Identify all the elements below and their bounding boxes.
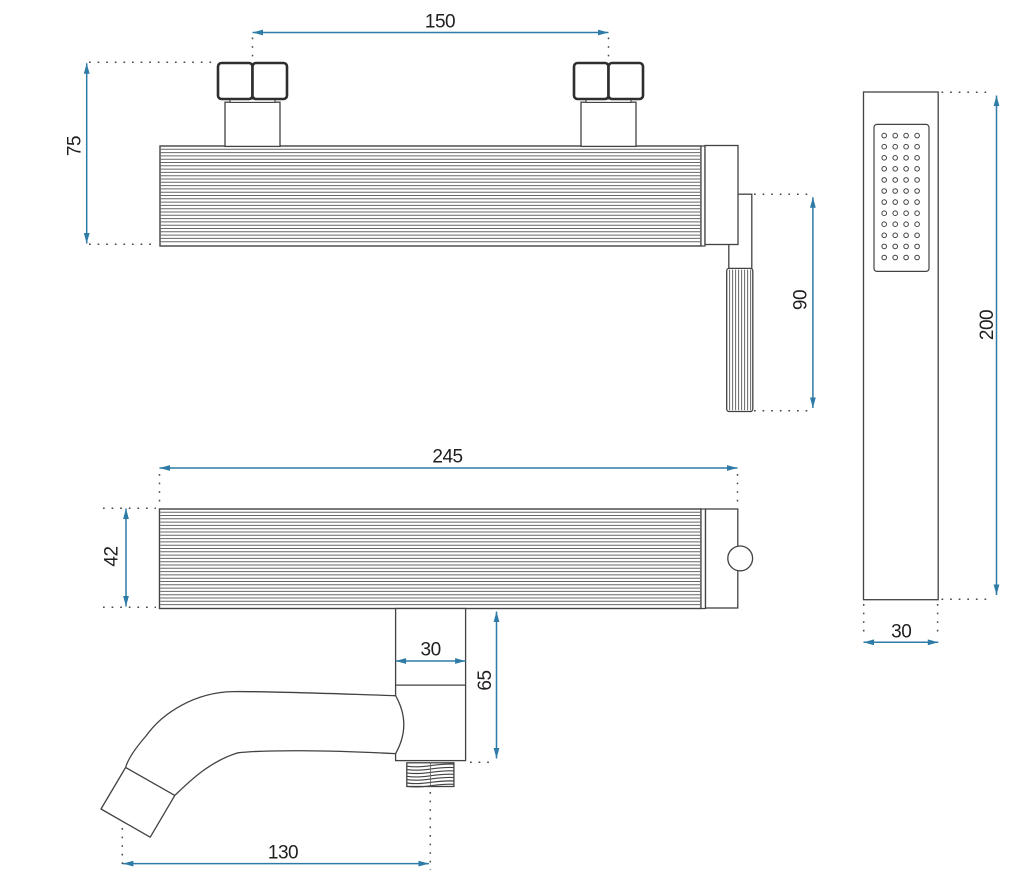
svg-text:150: 150 <box>425 12 455 33</box>
svg-text:245: 245 <box>432 447 462 468</box>
svg-text:30: 30 <box>421 640 441 661</box>
svg-text:65: 65 <box>475 670 496 690</box>
svg-text:30: 30 <box>891 621 911 642</box>
svg-text:75: 75 <box>65 136 86 156</box>
svg-text:42: 42 <box>102 546 123 566</box>
svg-text:90: 90 <box>790 290 811 310</box>
svg-text:200: 200 <box>977 310 998 340</box>
svg-text:130: 130 <box>268 843 298 864</box>
